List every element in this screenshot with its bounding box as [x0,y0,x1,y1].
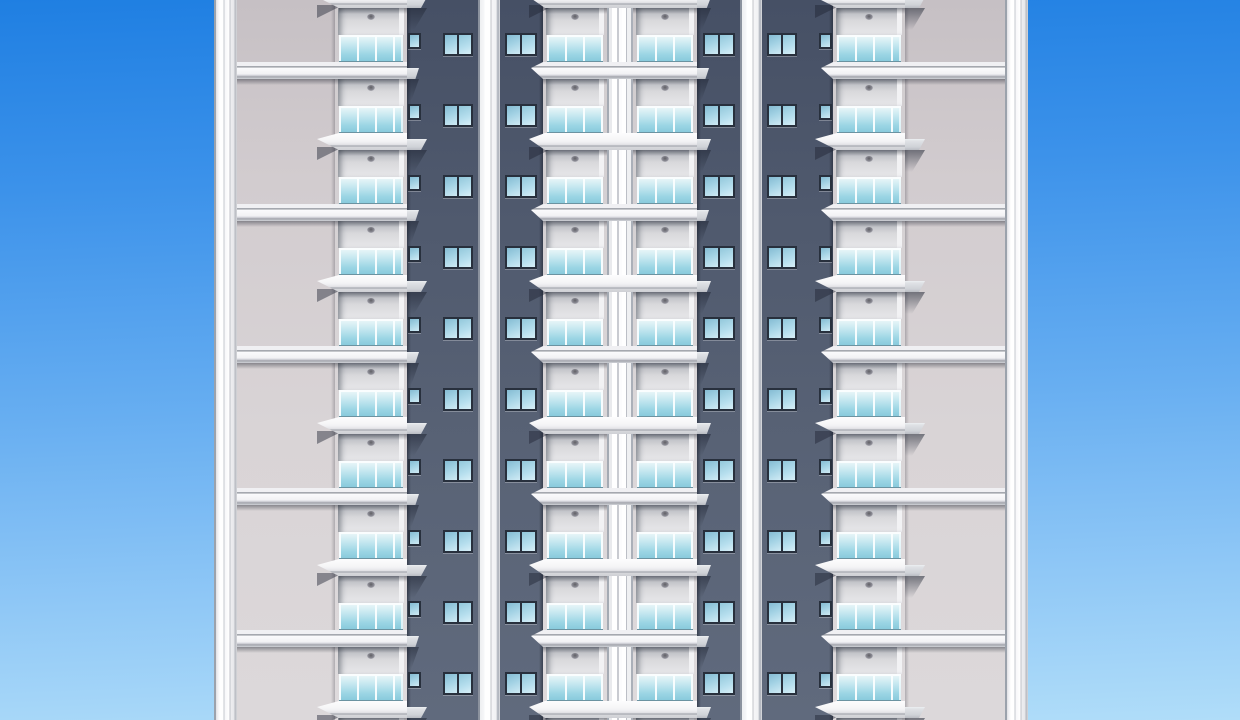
slab-under-shadow [837,576,905,582]
window [505,459,537,482]
window [819,530,832,546]
window-pane [769,177,781,196]
window-pane [522,603,535,622]
window [443,175,473,198]
slab-under-shadow [237,647,407,653]
window-pane [459,106,471,125]
window [408,33,421,49]
window [703,246,735,269]
window-pane [507,177,520,196]
slab-under-shadow [833,79,1005,85]
slab-under-shadow [339,292,407,298]
window-pane [445,106,457,125]
window [767,104,797,127]
slab-under-shadow [237,79,407,85]
window-pane [769,106,781,125]
ceiling-downlight-icon [367,440,375,446]
window [819,246,832,262]
window [443,388,473,411]
ceiling-downlight-icon [571,653,579,659]
window-pane [769,532,781,551]
balcony-glass-railing [637,106,693,133]
floor-band [531,204,697,221]
window-pane [720,532,733,551]
window-pane [522,248,535,267]
window [505,246,537,269]
slab-under-shadow [837,292,905,298]
window-pane [705,35,718,54]
window-pane [720,106,733,125]
window-pane [410,319,419,331]
window-pane [720,248,733,267]
window [443,104,473,127]
balcony-glass-railing [547,674,603,701]
balcony-glass-railing [339,106,403,133]
window-pane [410,248,419,260]
floor-band [821,630,1005,647]
window [505,104,537,127]
window-pane [507,248,520,267]
window-pane [769,674,781,693]
window [505,601,537,624]
balcony-glass-railing [637,248,693,275]
edge-pilaster-left [214,0,237,720]
pilaster-mid-right [740,0,762,720]
slab-under-shadow [237,363,407,369]
balcony-glass-railing [547,106,603,133]
balcony-glass-railing [339,248,403,275]
window-pane [445,248,457,267]
ceiling-downlight-icon [571,85,579,91]
window-pane [783,248,795,267]
window-pane [783,106,795,125]
balcony-ledge [529,0,697,8]
window [703,317,735,340]
window [819,459,832,475]
window-pane [507,674,520,693]
ceiling-downlight-icon [571,511,579,517]
window-pane [705,532,718,551]
window-pane [783,390,795,409]
window-pane [821,106,830,118]
window [767,317,797,340]
ceiling-downlight-icon [367,369,375,375]
window [767,459,797,482]
window [767,388,797,411]
window-pane [720,35,733,54]
window [703,601,735,624]
window [767,530,797,553]
balcony-glass-railing [837,461,901,488]
apartment-tower-facade [0,0,1240,720]
floor-band [531,488,697,505]
floor-band [237,204,407,221]
ceiling-downlight-icon [865,227,873,233]
ceiling-downlight-icon [865,14,873,20]
ceiling-downlight-icon [571,227,579,233]
balcony-glass-railing [637,532,693,559]
balcony-glass-railing [547,603,603,630]
balcony-glass-railing [837,177,901,204]
ceiling-downlight-icon [661,369,669,375]
ceiling-downlight-icon [865,582,873,588]
balcony-glass-railing [837,532,901,559]
window [408,530,421,546]
balcony-glass-railing [547,319,603,346]
ceiling-downlight-icon [661,653,669,659]
floor-band [531,62,697,79]
window-pane [821,461,830,473]
window-pane [459,319,471,338]
window [819,175,832,191]
window-pane [410,35,419,47]
floor-band [237,630,407,647]
floor-band [821,62,1005,79]
window [443,33,473,56]
balcony-glass-railing [547,461,603,488]
window-pane [507,532,520,551]
balcony-ledge [529,559,697,576]
balcony-glass-railing [547,390,603,417]
slab-under-shadow [833,363,1005,369]
slab-under-shadow [237,505,407,511]
ceiling-downlight-icon [661,298,669,304]
slab-under-shadow [837,8,905,14]
window-pane [410,603,419,615]
window [443,530,473,553]
balcony-glass-railing [637,35,693,62]
slab-under-shadow [339,434,407,440]
window-pane [459,603,471,622]
window [819,388,832,404]
balcony-glass-railing [339,390,403,417]
window [703,530,735,553]
window [443,672,473,695]
slab-under-shadow [837,150,905,156]
window-pane [445,177,457,196]
window-pane [720,461,733,480]
window-pane [769,603,781,622]
balcony-glass-railing [547,35,603,62]
slab-under-shadow [339,576,407,582]
window-pane [445,319,457,338]
window [408,317,421,333]
window-pane [445,35,457,54]
balcony-glass-railing [837,390,901,417]
window [408,104,421,120]
balcony-glass-railing [837,248,901,275]
window-pane [445,390,457,409]
balcony-ledge [529,701,697,718]
window-pane [705,248,718,267]
window-pane [459,461,471,480]
window-pane [522,319,535,338]
slab-under-shadow [339,150,407,156]
window-pane [783,461,795,480]
ceiling-downlight-icon [865,440,873,446]
window-pane [821,603,830,615]
window [767,601,797,624]
ceiling-downlight-icon [865,298,873,304]
window-pane [783,674,795,693]
window-pane [410,461,419,473]
window-pane [821,674,830,686]
ceiling-downlight-icon [367,227,375,233]
window-pane [705,674,718,693]
window [505,175,537,198]
floor-band [821,346,1005,363]
window [505,672,537,695]
window-pane [410,532,419,544]
floor-band [821,488,1005,505]
window-pane [507,390,520,409]
balcony-glass-railing [547,532,603,559]
window-pane [821,319,830,331]
balcony-glass-railing [339,603,403,630]
window [505,33,537,56]
window [767,672,797,695]
slab-under-shadow [237,221,407,227]
window [505,317,537,340]
pilaster-mid-left [478,0,500,720]
window [703,459,735,482]
ceiling-downlight-icon [865,85,873,91]
balcony-glass-railing [837,35,901,62]
floor-band [531,630,697,647]
window [703,672,735,695]
window [819,601,832,617]
window-pane [821,35,830,47]
slab-under-shadow [833,505,1005,511]
window-pane [522,177,535,196]
floor-band [237,62,407,79]
window [505,388,537,411]
balcony-glass-railing [339,532,403,559]
window-pane [522,106,535,125]
window-pane [507,319,520,338]
balcony-glass-railing [637,177,693,204]
balcony-glass-railing [637,390,693,417]
ceiling-downlight-icon [367,511,375,517]
window-pane [522,674,535,693]
balcony-glass-railing [637,603,693,630]
window [819,672,832,688]
window-pane [459,532,471,551]
window-pane [783,532,795,551]
window-pane [522,461,535,480]
ceiling-downlight-icon [367,14,375,20]
ceiling-downlight-icon [661,511,669,517]
ceiling-downlight-icon [661,227,669,233]
balcony-glass-railing [339,35,403,62]
window-pane [507,106,520,125]
ceiling-downlight-icon [571,582,579,588]
window-pane [410,106,419,118]
window [408,601,421,617]
balcony-ledge [529,275,697,292]
window-pane [720,603,733,622]
window-pane [705,461,718,480]
balcony-glass-railing [637,674,693,701]
ceiling-downlight-icon [367,156,375,162]
ceiling-downlight-icon [571,440,579,446]
ceiling-downlight-icon [865,369,873,375]
edge-pilaster-right [1005,0,1028,720]
window-pane [410,390,419,402]
ceiling-downlight-icon [571,369,579,375]
window [408,388,421,404]
window-pane [769,35,781,54]
window-pane [445,603,457,622]
window-pane [459,35,471,54]
slab-under-shadow [837,434,905,440]
window [443,317,473,340]
window-pane [783,177,795,196]
window-pane [705,177,718,196]
window-pane [821,532,830,544]
window [443,601,473,624]
window-pane [410,177,419,189]
window [505,530,537,553]
floor-band [821,204,1005,221]
window [819,104,832,120]
ceiling-downlight-icon [865,156,873,162]
balcony-glass-railing [837,603,901,630]
window-pane [720,674,733,693]
window-pane [459,177,471,196]
window-pane [821,177,830,189]
window-pane [459,248,471,267]
slab-under-shadow [833,221,1005,227]
window [767,246,797,269]
ceiling-downlight-icon [865,511,873,517]
balcony-glass-railing [547,248,603,275]
window-pane [507,461,520,480]
window-pane [507,35,520,54]
ceiling-downlight-icon [661,582,669,588]
window [819,33,832,49]
window-pane [783,603,795,622]
balcony-glass-railing [837,106,901,133]
window-pane [459,390,471,409]
architectural-render-scene [0,0,1240,720]
balcony-glass-railing [339,461,403,488]
ceiling-downlight-icon [661,440,669,446]
ceiling-downlight-icon [571,156,579,162]
window [767,175,797,198]
window [408,459,421,475]
window-pane [720,390,733,409]
balcony-glass-railing [637,461,693,488]
window-pane [445,674,457,693]
window-pane [705,603,718,622]
window [767,33,797,56]
window-pane [769,461,781,480]
slab-under-shadow [833,647,1005,653]
window-pane [769,390,781,409]
window-pane [522,532,535,551]
window [703,388,735,411]
window [443,246,473,269]
window [819,317,832,333]
window-pane [783,35,795,54]
ceiling-downlight-icon [661,14,669,20]
window-pane [720,177,733,196]
ceiling-downlight-icon [571,14,579,20]
window [408,246,421,262]
ceiling-downlight-icon [865,653,873,659]
balcony-glass-railing [339,319,403,346]
window [703,33,735,56]
window-pane [769,319,781,338]
window-pane [459,674,471,693]
window-pane [769,248,781,267]
balcony-ledge [529,133,697,150]
balcony-glass-railing [837,674,901,701]
window [408,175,421,191]
ceiling-downlight-icon [661,156,669,162]
window-pane [705,390,718,409]
window-pane [821,248,830,260]
balcony-glass-railing [339,674,403,701]
window-pane [522,35,535,54]
window-pane [705,106,718,125]
ceiling-downlight-icon [367,582,375,588]
window [408,672,421,688]
ceiling-downlight-icon [367,298,375,304]
floor-band [531,346,697,363]
slab-under-shadow [339,8,407,14]
floor-band [237,346,407,363]
window [703,104,735,127]
window [443,459,473,482]
window-pane [783,319,795,338]
balcony-glass-railing [547,177,603,204]
window-pane [410,674,419,686]
floor-band [237,488,407,505]
window-pane [821,390,830,402]
ceiling-downlight-icon [367,653,375,659]
window-pane [705,319,718,338]
balcony-ledge [529,417,697,434]
balcony-glass-railing [837,319,901,346]
ceiling-downlight-icon [661,85,669,91]
window-pane [522,390,535,409]
window [703,175,735,198]
ceiling-downlight-icon [367,85,375,91]
window-pane [720,319,733,338]
window-pane [445,532,457,551]
balcony-glass-railing [637,319,693,346]
ceiling-downlight-icon [571,298,579,304]
balcony-glass-railing [339,177,403,204]
window-pane [445,461,457,480]
window-pane [507,603,520,622]
